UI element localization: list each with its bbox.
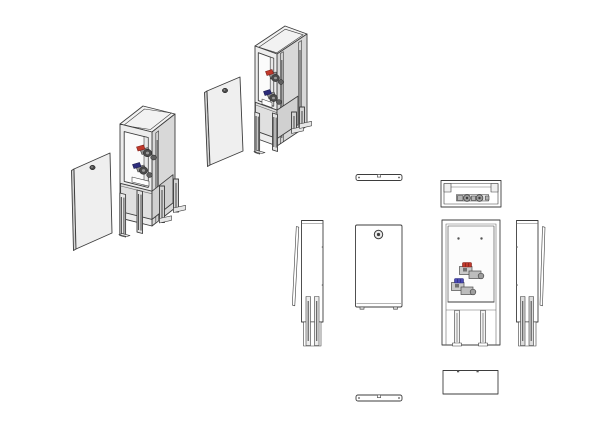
side-view-right bbox=[516, 221, 545, 347]
front-door-foot bbox=[394, 307, 398, 309]
front-door-foot bbox=[360, 307, 364, 309]
orthographic-views bbox=[292, 175, 545, 402]
valve-b2-union bbox=[276, 100, 281, 105]
front-door-lock-pin bbox=[377, 233, 380, 236]
side-left-door-edge bbox=[292, 227, 299, 306]
front-valve-2-stem bbox=[455, 284, 459, 288]
front-valve-2-flange bbox=[470, 289, 476, 295]
cabinet-iso-b bbox=[254, 26, 312, 154]
top-view-valve-manifold bbox=[457, 195, 490, 202]
bottom-cabinet-outline bbox=[443, 371, 498, 395]
front-view-cabinet bbox=[442, 220, 500, 346]
top-door-hinge-notch bbox=[377, 175, 380, 178]
front-cabinet-screw bbox=[480, 237, 482, 239]
side-right-screw-dot bbox=[516, 246, 518, 248]
technical-drawing-canvas bbox=[0, 0, 600, 425]
side-right-door-edge bbox=[540, 227, 545, 306]
door-panel-iso-b bbox=[205, 77, 244, 167]
door-b-lock-pin bbox=[224, 89, 226, 91]
valve-highlight bbox=[142, 169, 145, 172]
top-door-end-pin bbox=[358, 177, 360, 179]
side-right-screw-dot bbox=[516, 284, 518, 286]
valve-highlight bbox=[146, 152, 149, 155]
valve-highlight bbox=[272, 97, 275, 100]
top-cabinet-corner-bracket-left bbox=[444, 184, 451, 193]
top-cabinet-corner-bracket-right bbox=[491, 184, 498, 193]
valve-a1-union bbox=[151, 155, 157, 160]
front-cabinet-foot bbox=[479, 343, 488, 346]
manifold-block bbox=[472, 196, 476, 201]
side-left-body bbox=[302, 221, 324, 323]
bottom-view-door-panel bbox=[356, 395, 402, 401]
manifold-valve-stem bbox=[466, 197, 468, 199]
iso-exploded-view-b bbox=[205, 26, 312, 167]
bottom-cabinet-tick bbox=[477, 371, 479, 373]
side-view-left bbox=[292, 221, 323, 347]
multiview-drawing bbox=[0, 0, 600, 425]
bottom-door-end-pin bbox=[358, 397, 360, 399]
cabinet-iso-a bbox=[119, 106, 186, 237]
manifold-block bbox=[458, 196, 464, 201]
door-panel-iso-a bbox=[72, 153, 113, 251]
front-cabinet-foot bbox=[453, 343, 462, 346]
manifold-valve-stem bbox=[478, 197, 480, 199]
door-a-lock-pin bbox=[91, 166, 93, 168]
bottom-view-cabinet bbox=[443, 371, 498, 395]
cabinet-b-leg-front-left bbox=[255, 112, 260, 154]
bottom-door-end-pin bbox=[398, 397, 400, 399]
top-view-cabinet bbox=[441, 181, 501, 208]
valve-b1-union bbox=[278, 80, 283, 85]
side-left-screw-dot bbox=[322, 246, 324, 248]
iso-exploded-view-a bbox=[72, 106, 186, 251]
top-door-end-pin bbox=[398, 177, 400, 179]
cabinet-a-interior-wall bbox=[144, 137, 148, 188]
valve-a2-union bbox=[147, 173, 153, 178]
bottom-door-hinge-notch bbox=[377, 395, 380, 398]
valve-highlight bbox=[274, 77, 277, 80]
manifold-block bbox=[486, 196, 490, 200]
side-right-body bbox=[517, 221, 539, 323]
side-left-screw-dot bbox=[322, 284, 324, 286]
front-valve-2-handle-blue bbox=[455, 279, 464, 284]
bottom-cabinet-tick bbox=[457, 371, 459, 373]
cabinet-a-leg-front-mid bbox=[137, 190, 143, 234]
front-valve-1-stem bbox=[463, 268, 467, 272]
front-valve-1-handle-red bbox=[463, 263, 472, 268]
front-view-door-panel bbox=[356, 225, 403, 309]
top-view-door-panel bbox=[356, 175, 402, 181]
front-cabinet-screw bbox=[457, 237, 459, 239]
front-valve-1-flange bbox=[478, 273, 484, 279]
cabinet-a-leg-front-left bbox=[120, 193, 126, 237]
